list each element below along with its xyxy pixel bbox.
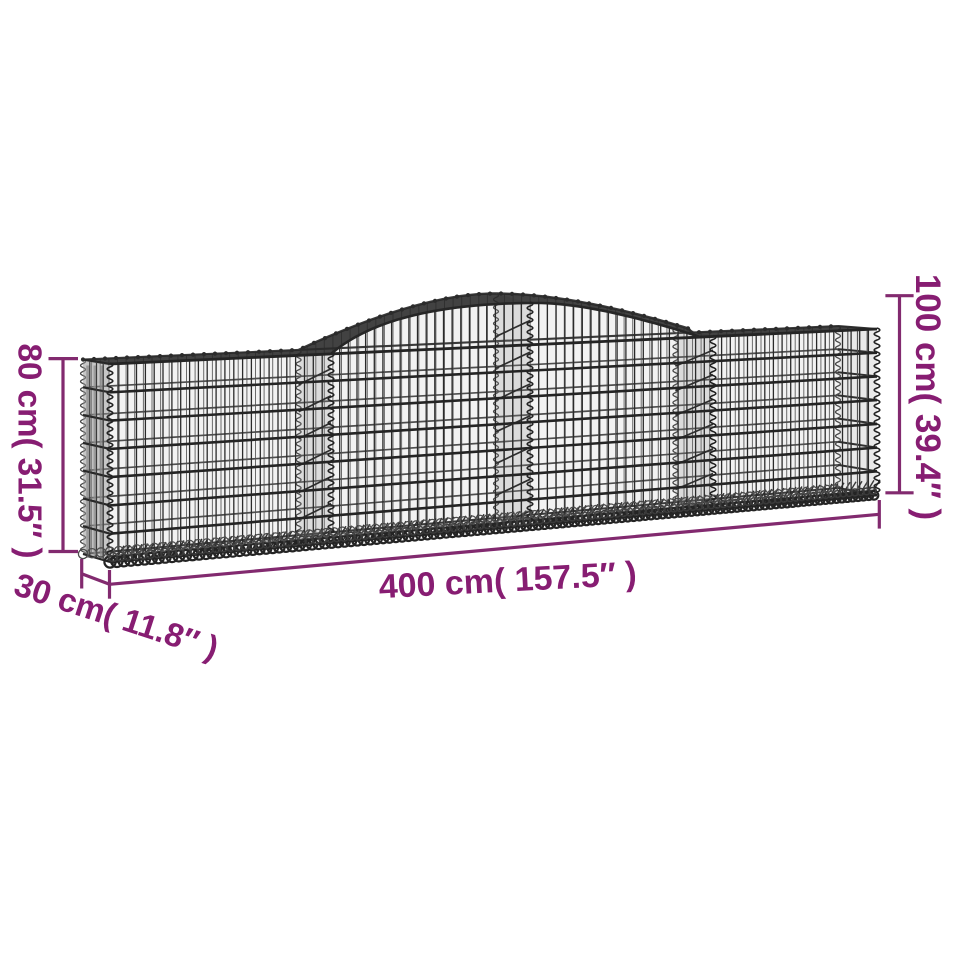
svg-text:30 cm( 11.8″ ): 30 cm( 11.8″ ) <box>10 566 223 667</box>
svg-text:400 cm( 157.5″ ): 400 cm( 157.5″ ) <box>378 555 638 606</box>
svg-text:80 cm( 31.5″ ): 80 cm( 31.5″ ) <box>11 343 48 558</box>
svg-text:100 cm( 39.4″ ): 100 cm( 39.4″ ) <box>908 274 947 520</box>
